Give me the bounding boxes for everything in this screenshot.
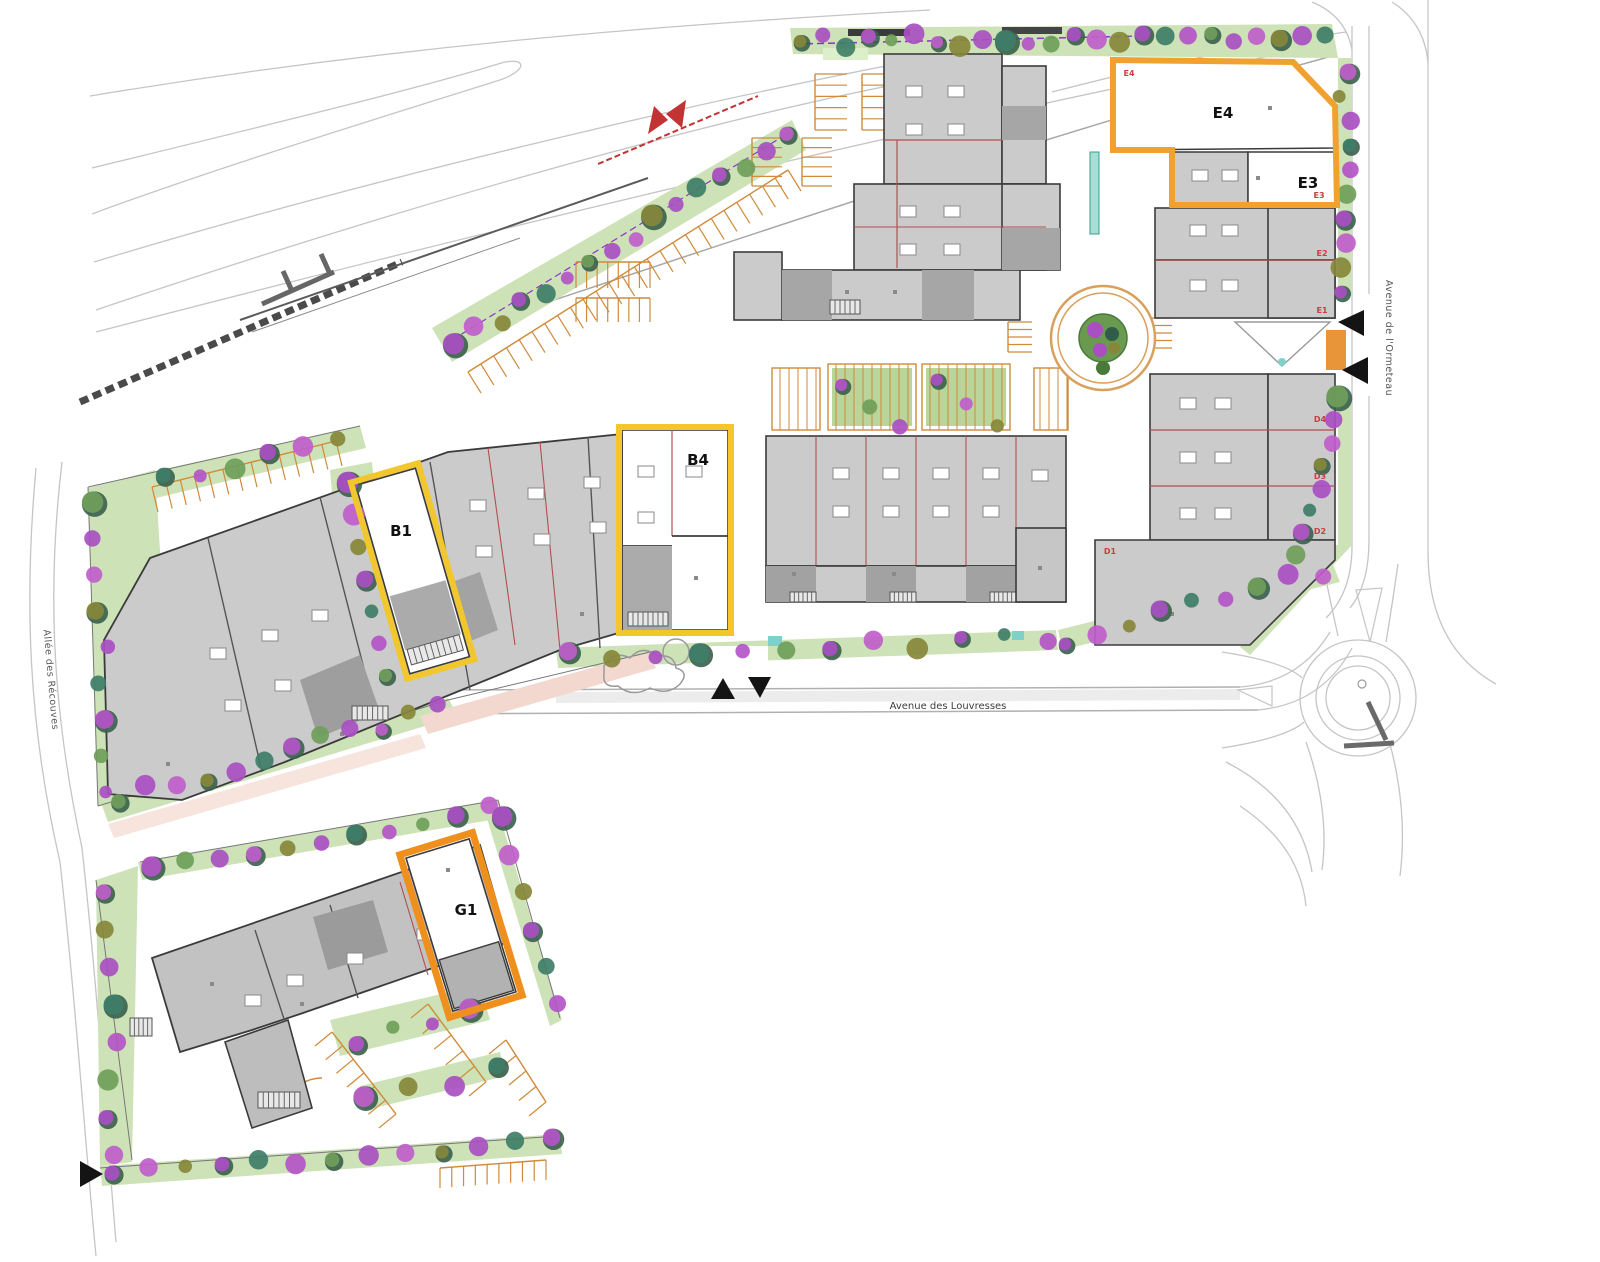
- unit-tag-e4: E4: [1123, 69, 1134, 78]
- site-plan-svg: E4 E3 B4 B1 G1 E4 E3 E2 E1 D4 D3 D2 D1 A…: [0, 0, 1600, 1262]
- unit-tag-d3: D3: [1314, 472, 1326, 481]
- unit-e3-label: E3: [1298, 174, 1319, 192]
- street-label-louvresses: Avenue des Louvresses: [890, 701, 1007, 712]
- unit-tag-d2: D2: [1314, 527, 1326, 536]
- railway-layer: [80, 96, 758, 402]
- unit-tag-d1: D1: [1104, 547, 1117, 556]
- unit-b1-label: B1: [390, 522, 412, 540]
- unit-tag-e1: E1: [1316, 306, 1327, 315]
- site-plan-page: E4 E3 B4 B1 G1 E4 E3 E2 E1 D4 D3 D2 D1 A…: [0, 0, 1600, 1262]
- unit-e4-label: E4: [1213, 104, 1234, 122]
- unit-b4-label: B4: [687, 451, 709, 469]
- unit-tag-e3: E3: [1313, 191, 1324, 200]
- buildings-layer: [104, 54, 1335, 1128]
- street-label-ormeteau: Avenue de l'Ormeteau: [1383, 280, 1394, 396]
- unit-tag-d4: D4: [1314, 415, 1327, 424]
- central-roundabout-plaza: [1051, 286, 1155, 390]
- unit-g1-label: G1: [455, 901, 478, 919]
- unit-tag-e2: E2: [1316, 249, 1327, 258]
